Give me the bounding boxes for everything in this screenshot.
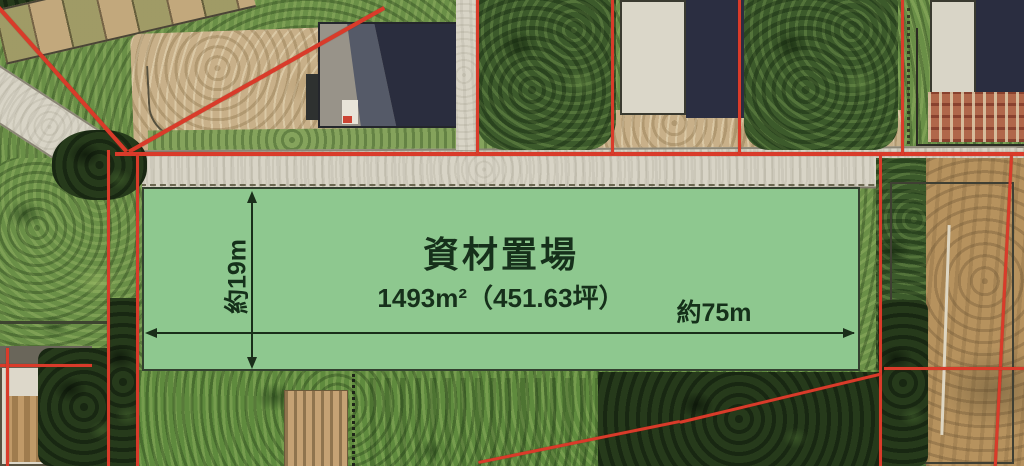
- house-building: [318, 22, 458, 128]
- farm-building-shadow: [976, 0, 1024, 100]
- boundary-dotted-line: [352, 374, 355, 466]
- dark-vegetation: [598, 372, 880, 466]
- height-dimension-label: 約19m: [226, 222, 251, 332]
- aerial-map: 資材置場 1493m²（451.63坪） 約19m 約75m: [0, 0, 1024, 466]
- boundary-line-red: [107, 150, 110, 466]
- farm-building-roof: [930, 0, 976, 96]
- boundary-line-red: [6, 348, 9, 466]
- boundary-dark-line: [916, 28, 918, 146]
- width-dimension-label: 約75m: [654, 301, 774, 326]
- width-dimension-line: [152, 332, 854, 334]
- tilled-plot: [284, 390, 348, 466]
- boundary-line-red: [738, 0, 741, 154]
- arrow-right-icon: [843, 328, 855, 338]
- arrow-up-icon: [247, 191, 257, 203]
- tree-cluster: [476, 0, 616, 150]
- boundary-line-red: [879, 156, 882, 466]
- tree-cluster: [744, 0, 898, 150]
- boundary-dark-line: [916, 144, 1024, 146]
- house-entrance-mark: [343, 116, 352, 123]
- farm-building-roof: [620, 0, 686, 115]
- tree-strip: [110, 298, 136, 466]
- boundary-line-red: [476, 0, 479, 154]
- boundary-line-red: [136, 155, 139, 466]
- arrow-down-icon: [247, 357, 257, 369]
- boundary-line-red: [901, 0, 904, 155]
- boundary-line-red: [611, 0, 614, 154]
- parcel-overlay: 資材置場 1493m²（451.63坪） 約19m 約75m: [142, 187, 860, 371]
- fence-line: [0, 321, 108, 324]
- boundary-line-red: [115, 152, 1024, 156]
- boundary-line-red: [0, 364, 92, 367]
- farm-building-shadow: [686, 0, 744, 118]
- greenhouse-frames: [928, 92, 1024, 142]
- crop-rows: [370, 378, 620, 466]
- boundary-line-red: [884, 367, 1024, 370]
- tree-cluster: [878, 300, 928, 466]
- tree-shadow: [52, 130, 147, 200]
- boundary-dotted-line: [907, 8, 910, 144]
- path-strip: [456, 0, 476, 150]
- arrow-left-icon: [145, 328, 157, 338]
